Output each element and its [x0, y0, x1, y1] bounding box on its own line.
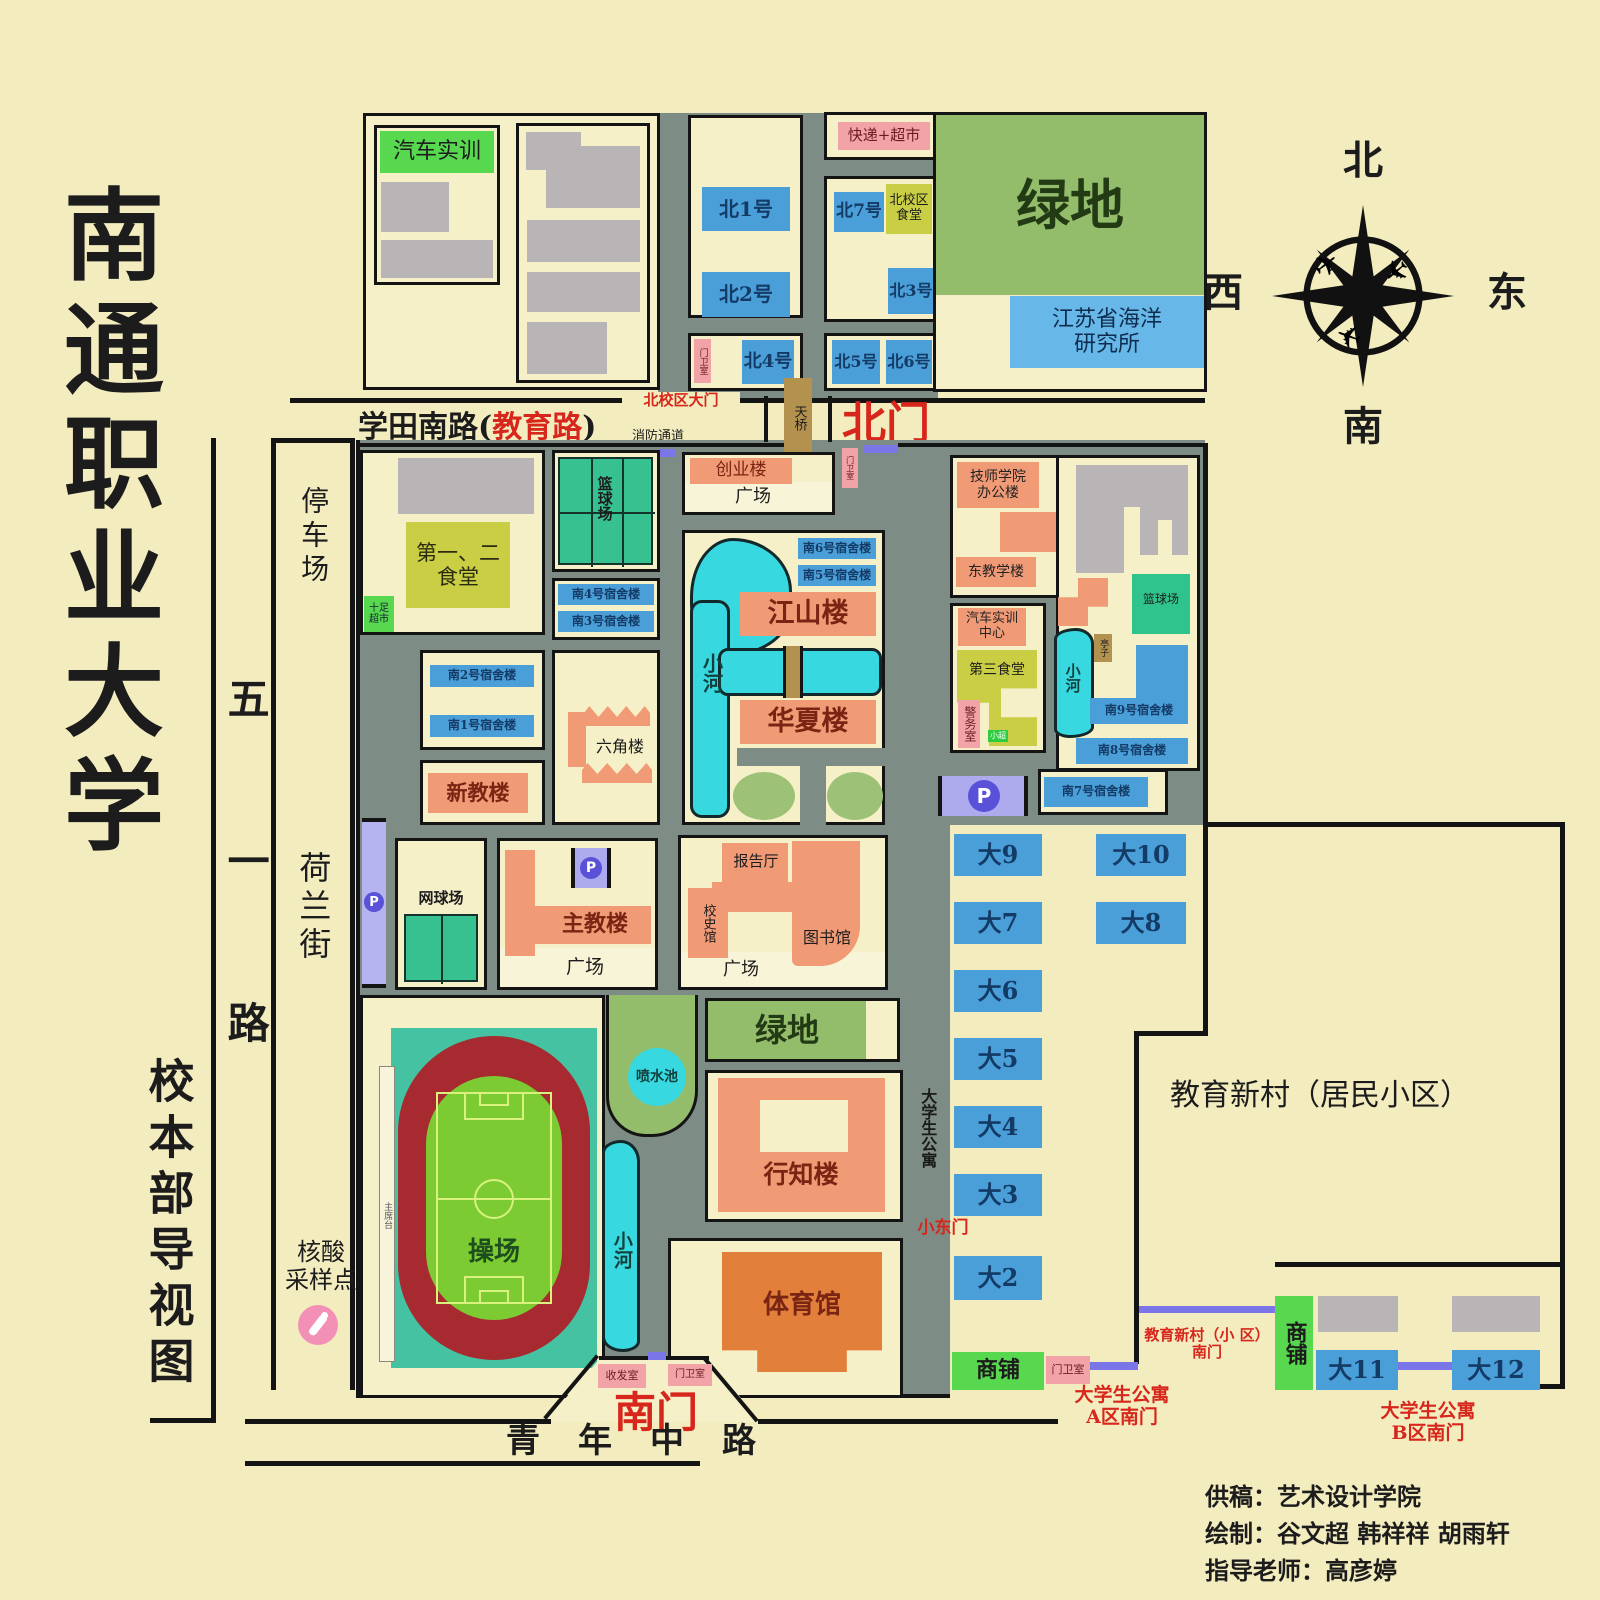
qingnian-road-line: [245, 1461, 700, 1466]
xuetian-road-label: 学田南路(教育路): [358, 402, 596, 436]
residential-jog: [1134, 1031, 1208, 1036]
helan-street-label: 荷兰街: [294, 848, 332, 968]
apartment-da11: 大11: [1316, 1350, 1398, 1390]
xingzhi-courtyard: [760, 1100, 848, 1152]
canteen-1-2: 第一、二 食堂: [406, 522, 510, 608]
parking-icon: P: [364, 892, 384, 912]
shops-b: 商铺: [1275, 1296, 1313, 1390]
dorm-bei1: 北1号: [702, 187, 790, 231]
residential-east-boundary: [1560, 822, 1565, 1388]
parking-strip-cap: [271, 438, 355, 443]
inner-path: [800, 748, 826, 825]
apartment-da3: 大3: [954, 1174, 1042, 1216]
footbridge-rail: [818, 396, 832, 442]
parking-icon: P: [580, 857, 602, 879]
compass-east-label: 东: [1482, 268, 1532, 318]
north-gray-building: [527, 272, 640, 312]
zhujiao-plaza-label: 广场: [550, 955, 620, 981]
apartment-da4: 大4: [954, 1106, 1042, 1148]
north-gray-building: [381, 240, 493, 278]
dorm-nan9: 南9号宿舍楼: [1090, 698, 1188, 724]
apartment-da7: 大7: [954, 902, 1042, 944]
credit-line: 绘制：谷文超 韩祥祥 胡雨轩: [1205, 1515, 1595, 1552]
library-label: 图书馆: [796, 928, 858, 948]
map-caption-bracket: [150, 1418, 216, 1423]
liujiao-building: [568, 712, 586, 767]
dorm-nan8: 南8号宿舍楼: [1076, 738, 1188, 764]
b-gate-label: 大学生公寓 B区南门: [1348, 1394, 1508, 1452]
b-zone-boundary-stub: [1537, 1384, 1565, 1389]
library-link: [712, 882, 798, 912]
b-zone-gray-building: [1318, 1296, 1398, 1332]
dorm-nan1: 南1号宿舍楼: [430, 715, 534, 737]
apartment-da5: 大5: [954, 1038, 1042, 1080]
footbridge-rail: [764, 396, 778, 442]
compass-rose-icon: ✈ ✈ ✈: [1272, 205, 1454, 387]
test-tube-icon: [298, 1305, 338, 1345]
north-gray-building: [527, 220, 640, 262]
dorm-nan5: 南5号宿舍楼: [798, 565, 876, 586]
east-boundary: [1203, 443, 1208, 827]
auto-training-building: 汽车实训: [380, 131, 494, 173]
north-campus-canteen: 北校区 食堂: [886, 184, 932, 234]
b-zone-gray-building: [1452, 1296, 1540, 1332]
tennis-courts: [404, 914, 478, 982]
huaxia-building: 华夏楼: [740, 700, 876, 744]
auto-training-center: 汽车实训 中心: [958, 608, 1026, 646]
dorm-bei5: 北5号: [832, 340, 880, 384]
map-caption: 校本部导视图: [128, 1045, 208, 1405]
technician-office: 技师学院 办公楼: [957, 462, 1039, 508]
river-label-center: 小河: [697, 628, 725, 718]
express-market: 快递+超市: [838, 122, 930, 150]
gate-marker: [864, 445, 898, 453]
shizu-market: 十足 超市: [364, 596, 394, 632]
dorm-nan6: 南6号宿舍楼: [798, 538, 876, 559]
fountain-label: 喷水池: [626, 1068, 688, 1086]
footbridge-label: 天桥: [786, 392, 810, 444]
playground-label: 操场: [444, 1238, 544, 1268]
east-gray-building: [1158, 520, 1172, 555]
apartment-da12: 大12: [1452, 1350, 1540, 1390]
parking-lot-label: 停车场: [296, 482, 330, 592]
apartment-da9: 大9: [954, 834, 1042, 876]
zhujiao-label: 主教楼: [545, 912, 645, 938]
east-gray-building: [1076, 465, 1188, 507]
marine-institute: 江苏省海洋 研究所: [1010, 296, 1204, 368]
east-teaching-building: 东教学楼: [956, 557, 1036, 587]
east-gray-building: [1076, 505, 1124, 573]
gray-building: [398, 458, 534, 514]
campus-north-boundary: [356, 443, 784, 447]
parking-icon: P: [968, 780, 1000, 812]
north-gray-building: [527, 322, 607, 374]
shops-a: 商铺: [952, 1352, 1044, 1390]
credit-line: 指导老师：高彦婷: [1205, 1552, 1595, 1589]
east-river-label: 小河: [1060, 648, 1084, 708]
gym-label: 体育馆: [742, 1290, 862, 1322]
south-gatehouse: 门卫室: [668, 1364, 712, 1386]
campus-north-boundary: [898, 443, 1205, 447]
rostrum-label: 主席台: [380, 1180, 394, 1250]
credits: 供稿：艺术设计学院 绘制：谷文超 韩祥祥 胡雨轩 指导老师：高彦婷: [1205, 1478, 1595, 1590]
basketball-label-west: 篮球场: [592, 462, 616, 534]
green-space-center: 绿地: [708, 1001, 866, 1059]
a-gate-label: 大学生公寓 A区南门: [1042, 1378, 1202, 1436]
south-river-label: 小河: [608, 1210, 634, 1290]
apartment-da10: 大10: [1096, 834, 1186, 876]
history-hall-label: 校史馆: [694, 894, 720, 952]
north-campus-gate-label: 北校区大门: [622, 392, 740, 409]
lawn-oval: [827, 772, 883, 820]
residential-west-boundary: [1134, 1031, 1139, 1364]
mail-room: 收发室: [598, 1364, 646, 1388]
residential-north-boundary: [1203, 822, 1565, 827]
north-gate-gatehouse: 门卫室: [842, 448, 858, 488]
canteen3-label: 第三食堂: [958, 660, 1036, 680]
campus-map: 南通职业大学 校本部导视图 五一路 停车场 荷兰街 核酸 采样点 ✈ ✈ ✈: [0, 0, 1600, 1600]
mini-market: 小超: [988, 730, 1008, 742]
apartment-da8: 大8: [1096, 902, 1186, 944]
apartment-da6: 大6: [954, 970, 1042, 1012]
university-title-calligraphy: 南通职业大学: [45, 160, 165, 890]
police-room: 警务室: [958, 700, 980, 748]
dorm-bei7: 北7号: [834, 192, 884, 232]
pavilion: 亭子: [1094, 634, 1112, 662]
gate-marker: [660, 449, 676, 457]
qingnian-road-label: 青年中路: [480, 1424, 820, 1460]
north-gray-building: [546, 146, 640, 208]
dorm-nan7: 南7号宿舍楼: [1044, 777, 1148, 807]
wuyi-road-line-west: [211, 438, 216, 1423]
green-space-north: 绿地: [936, 115, 1204, 295]
river-bridge: [783, 646, 803, 698]
credit-line: 供稿：艺术设计学院: [1205, 1478, 1595, 1515]
b-zone-boundary-top: [1275, 1262, 1565, 1267]
chuangye-plaza-label: 广场: [718, 485, 788, 509]
dorm-nan4: 南4号宿舍楼: [558, 584, 654, 605]
dorm-nan9-wing: [1136, 645, 1188, 703]
dorm-bei6: 北6号: [886, 340, 932, 384]
liujiao-label: 六角楼: [588, 736, 652, 758]
lawn-oval: [733, 772, 795, 820]
chuangye-building: 创业楼: [690, 458, 792, 484]
basketball-label-east: 篮球场: [1134, 592, 1188, 608]
apartment-da2: 大2: [954, 1256, 1042, 1300]
wuyi-road-label: 五一路: [222, 660, 268, 1180]
residential-west-boundary: [1203, 822, 1208, 1036]
compass-south-label: 南: [1338, 402, 1388, 452]
xinjiao-building: 新教楼: [428, 773, 528, 813]
north-gatehouse: 门卫室: [694, 339, 711, 383]
small-east-gate-label: 小东门: [904, 1218, 982, 1240]
xingzhi-label: 行知楼: [745, 1160, 857, 1190]
gate-path: [1139, 1306, 1275, 1313]
soccer-pitch-lines: [436, 1092, 552, 1304]
gate-marker: [648, 1352, 666, 1360]
library-plaza-label: 广场: [706, 958, 776, 982]
student-apartment-road-label: 大学生公寓: [912, 1058, 942, 1198]
dorm-bei3: 北3号: [888, 268, 934, 314]
residential-area-label: 教育新村（居民小区）: [1150, 1078, 1490, 1114]
xincun-gate-label: 教育新村（小 区） 南门: [1124, 1322, 1290, 1366]
jiangshan-building: 江山楼: [740, 592, 876, 636]
north-gray-building: [381, 182, 449, 232]
dorm-nan3: 南3号宿舍楼: [558, 611, 654, 632]
compass-north-label: 北: [1338, 136, 1388, 186]
dorm-bei2: 北2号: [702, 272, 790, 317]
dorm-nan2: 南2号宿舍楼: [430, 665, 534, 687]
gate-path: [1398, 1362, 1452, 1370]
tennis-label: 网球场: [404, 888, 478, 910]
lecture-hall-label: 报告厅: [724, 852, 788, 872]
